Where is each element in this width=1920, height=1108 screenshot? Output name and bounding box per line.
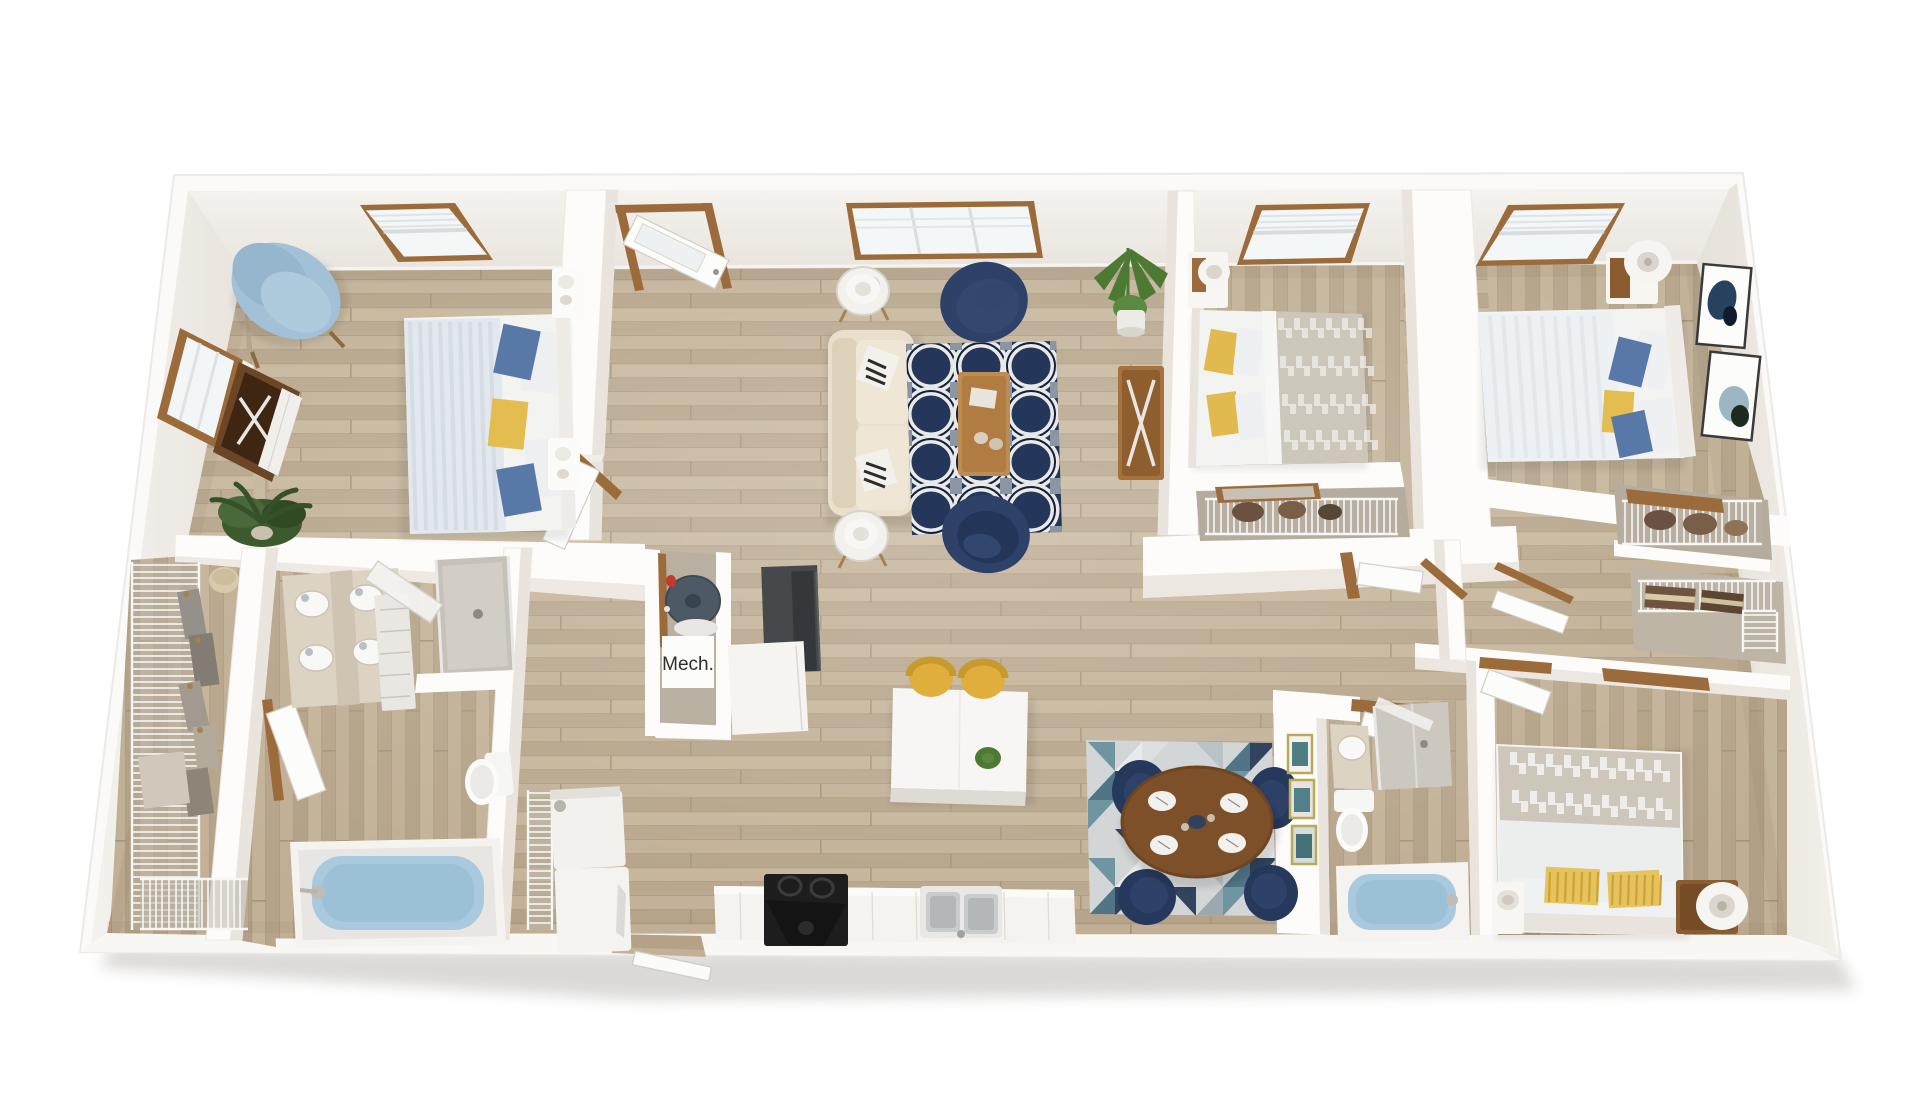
svg-text:Mech.: Mech. bbox=[662, 654, 714, 675]
